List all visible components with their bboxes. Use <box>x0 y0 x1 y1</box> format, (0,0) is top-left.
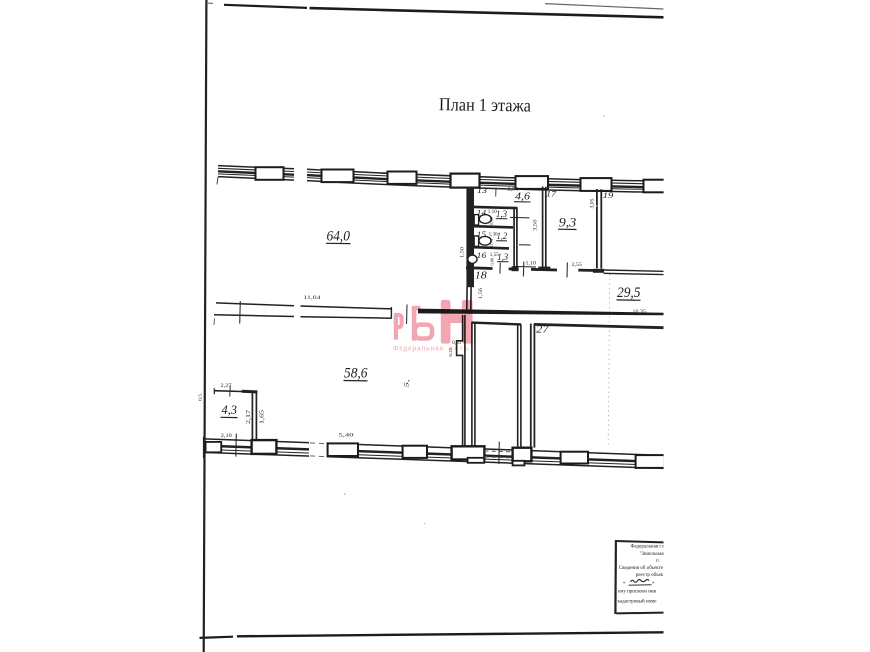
svg-text:«: « <box>623 581 626 586</box>
svg-text:0,5: 0,5 <box>198 393 204 401</box>
svg-text:»: » <box>652 581 655 586</box>
svg-text:2,10: 2,10 <box>221 433 232 439</box>
svg-text:1,10: 1,10 <box>526 261 537 267</box>
svg-text:58,6: 58,6 <box>344 366 368 382</box>
svg-text:3,50: 3,50 <box>533 219 539 231</box>
svg-text:План 1 этажа: План 1 этажа <box>439 94 531 115</box>
svg-text:5,: 5, <box>404 379 411 388</box>
svg-text:11,64: 11,64 <box>304 295 321 301</box>
svg-text:13: 13 <box>477 185 488 195</box>
svg-text:Сведения об объекте: Сведения об объекте <box>619 566 664 571</box>
svg-text:29,5: 29,5 <box>617 285 641 301</box>
svg-text:19: 19 <box>603 190 614 200</box>
svg-text:ему присвоен инв: ему присвоен инв <box>618 590 657 595</box>
svg-text:4,6: 4,6 <box>515 192 531 203</box>
svg-text:Федеральная сл: Федеральная сл <box>631 545 665 550</box>
svg-text:64,0: 64,0 <box>327 229 351 245</box>
svg-text:1,56: 1,56 <box>478 288 484 299</box>
svg-text:2,27: 2,27 <box>221 383 232 389</box>
svg-text:реестр объек: реестр объек <box>636 573 664 578</box>
svg-text:27: 27 <box>536 323 549 335</box>
svg-text:5,40: 5,40 <box>339 433 354 439</box>
svg-text:17: 17 <box>546 189 557 199</box>
svg-text:кадастровый номе: кадастровый номе <box>618 600 658 605</box>
svg-text:4,3: 4,3 <box>222 403 238 417</box>
svg-text:"Земельная к: "Земельная к <box>640 552 668 557</box>
svg-text:16: 16 <box>477 251 487 260</box>
svg-text:2,17: 2,17 <box>246 410 252 424</box>
svg-text:0,75: 0,75 <box>489 238 495 246</box>
svg-text:14: 14 <box>477 209 487 218</box>
svg-text:15: 15 <box>477 230 487 239</box>
svg-text:1,65: 1,65 <box>260 410 266 424</box>
svg-text:0,88: 0,88 <box>490 257 496 265</box>
svg-text:(г.: (г. <box>656 558 660 563</box>
svg-text:9,3: 9,3 <box>559 216 577 230</box>
svg-text:0,95: 0,95 <box>489 217 495 225</box>
svg-text:сеть: сеть <box>449 344 470 353</box>
svg-text:3,05: 3,05 <box>589 198 595 208</box>
svg-text:1,50: 1,50 <box>460 247 466 258</box>
svg-text:2,55: 2,55 <box>572 262 583 268</box>
svg-text:Федеральная: Федеральная <box>393 344 444 353</box>
svg-text:18: 18 <box>475 271 487 282</box>
